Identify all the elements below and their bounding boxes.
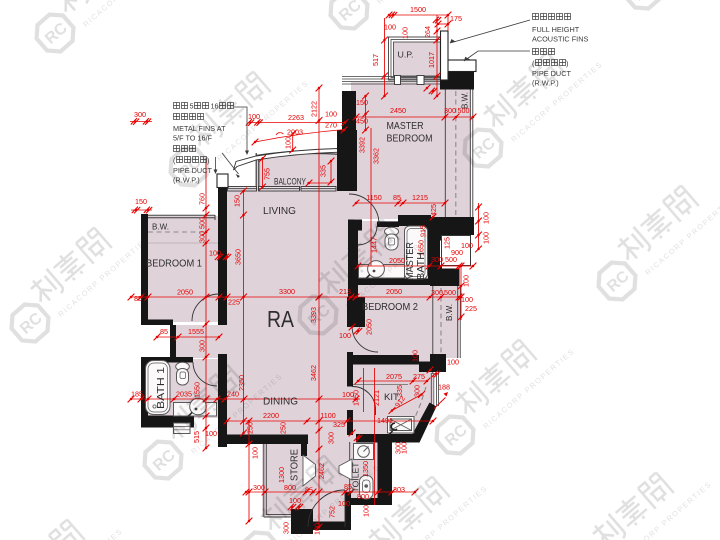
svg-text:1017: 1017 xyxy=(427,52,436,68)
svg-text:B.W.: B.W. xyxy=(460,92,470,109)
svg-text:100: 100 xyxy=(251,447,260,459)
svg-text:275: 275 xyxy=(413,372,425,381)
svg-text:188: 188 xyxy=(438,383,450,392)
svg-text:2050: 2050 xyxy=(365,319,374,335)
svg-text:100: 100 xyxy=(325,110,337,119)
svg-text:100: 100 xyxy=(447,358,459,367)
svg-text:1450: 1450 xyxy=(352,390,361,406)
svg-text:85: 85 xyxy=(160,327,168,336)
svg-text:U.P.: U.P. xyxy=(398,50,414,60)
svg-text:100: 100 xyxy=(284,137,293,149)
svg-text:100: 100 xyxy=(462,275,471,287)
svg-text:2075: 2075 xyxy=(386,372,402,381)
svg-text:STORE: STORE xyxy=(289,449,301,481)
svg-text:500: 500 xyxy=(198,217,207,229)
svg-text:1215: 1215 xyxy=(412,193,428,202)
svg-text:KIT.: KIT. xyxy=(384,392,401,403)
svg-text:RA: RA xyxy=(267,306,295,332)
svg-text:MASTER: MASTER xyxy=(387,121,424,132)
svg-text:100: 100 xyxy=(482,232,491,244)
svg-text:300: 300 xyxy=(327,432,336,444)
svg-text:100: 100 xyxy=(209,249,221,258)
svg-text:760: 760 xyxy=(198,193,207,205)
svg-text:3362: 3362 xyxy=(372,148,381,164)
svg-text:335: 335 xyxy=(319,165,328,177)
svg-text:FULL HEIGHT: FULL HEIGHT xyxy=(532,25,580,34)
svg-text:185: 185 xyxy=(131,390,143,399)
svg-text:BATH: BATH xyxy=(415,252,427,280)
svg-text:100: 100 xyxy=(362,505,371,517)
svg-text:BALCONY: BALCONY xyxy=(274,177,306,187)
svg-text:1150: 1150 xyxy=(366,193,381,202)
svg-text:BEDROOM 1: BEDROOM 1 xyxy=(146,259,202,270)
svg-text:100: 100 xyxy=(339,331,351,340)
svg-text:BEDROOM 2: BEDROOM 2 xyxy=(362,302,418,313)
svg-text:2035: 2035 xyxy=(176,390,192,399)
svg-text:BATH 1: BATH 1 xyxy=(156,367,167,409)
svg-text:225: 225 xyxy=(465,304,477,313)
svg-text:300: 300 xyxy=(198,340,207,352)
svg-text:3650: 3650 xyxy=(234,249,243,265)
svg-text:2263: 2263 xyxy=(288,113,304,122)
svg-text:125: 125 xyxy=(443,237,452,249)
svg-text:3300: 3300 xyxy=(279,287,295,296)
svg-text:150: 150 xyxy=(233,195,242,207)
svg-text:225: 225 xyxy=(228,298,240,307)
svg-text:300: 300 xyxy=(253,483,265,492)
svg-text:BEDROOM: BEDROOM xyxy=(387,134,433,145)
svg-text:100: 100 xyxy=(401,27,410,39)
svg-text:85: 85 xyxy=(134,294,142,303)
svg-text:325: 325 xyxy=(333,420,345,429)
svg-text:2121: 2121 xyxy=(372,390,381,406)
svg-text:2200: 2200 xyxy=(263,411,279,420)
svg-text:303: 303 xyxy=(393,485,405,494)
svg-text:B.W.: B.W. xyxy=(444,304,454,321)
svg-text:85: 85 xyxy=(393,193,401,202)
svg-text:300: 300 xyxy=(198,231,207,243)
svg-text:150: 150 xyxy=(135,197,147,206)
svg-text:250: 250 xyxy=(279,422,288,434)
svg-text:DINING: DINING xyxy=(263,396,298,408)
svg-text:100: 100 xyxy=(482,212,491,224)
svg-text:100: 100 xyxy=(384,23,396,32)
svg-text:1300: 1300 xyxy=(277,467,286,483)
svg-text:3462: 3462 xyxy=(309,365,318,381)
svg-text:300: 300 xyxy=(431,288,443,297)
svg-text:1491: 1491 xyxy=(377,416,393,425)
svg-text:270: 270 xyxy=(325,121,337,130)
svg-text:100: 100 xyxy=(461,295,473,304)
svg-text:150: 150 xyxy=(356,98,368,107)
svg-text:300: 300 xyxy=(431,255,443,264)
svg-text:1100: 1100 xyxy=(320,411,335,420)
svg-text:300: 300 xyxy=(444,106,456,115)
svg-text:517: 517 xyxy=(371,54,380,66)
svg-text:2122: 2122 xyxy=(310,101,319,117)
svg-text:2450: 2450 xyxy=(390,106,406,115)
svg-text:100: 100 xyxy=(461,241,473,250)
svg-text:1555: 1555 xyxy=(188,327,204,336)
svg-text:100: 100 xyxy=(400,442,409,454)
svg-text:2050: 2050 xyxy=(177,288,193,297)
svg-text:B.W.: B.W. xyxy=(152,222,169,232)
svg-text:300: 300 xyxy=(413,385,422,397)
svg-text:2050: 2050 xyxy=(386,287,402,296)
svg-text:300: 300 xyxy=(134,110,146,119)
svg-text:LIVING: LIVING xyxy=(263,205,296,217)
svg-text:175: 175 xyxy=(450,14,462,23)
svg-text:500: 500 xyxy=(444,288,456,297)
svg-text:5: 5 xyxy=(190,102,194,111)
svg-text:ACOUSTIC FINS: ACOUSTIC FINS xyxy=(532,35,588,44)
svg-text:2003: 2003 xyxy=(287,128,303,137)
svg-text:213: 213 xyxy=(339,287,351,296)
svg-text:264: 264 xyxy=(423,26,432,38)
svg-text:300: 300 xyxy=(282,522,291,534)
svg-text:): ) xyxy=(566,59,568,68)
svg-text:250: 250 xyxy=(246,422,255,434)
svg-text:450: 450 xyxy=(356,117,368,126)
svg-text:1500: 1500 xyxy=(410,5,426,14)
svg-text:3392: 3392 xyxy=(358,137,367,153)
svg-text:425: 425 xyxy=(429,204,438,216)
svg-text:755: 755 xyxy=(263,168,272,180)
svg-text:100: 100 xyxy=(411,350,420,362)
